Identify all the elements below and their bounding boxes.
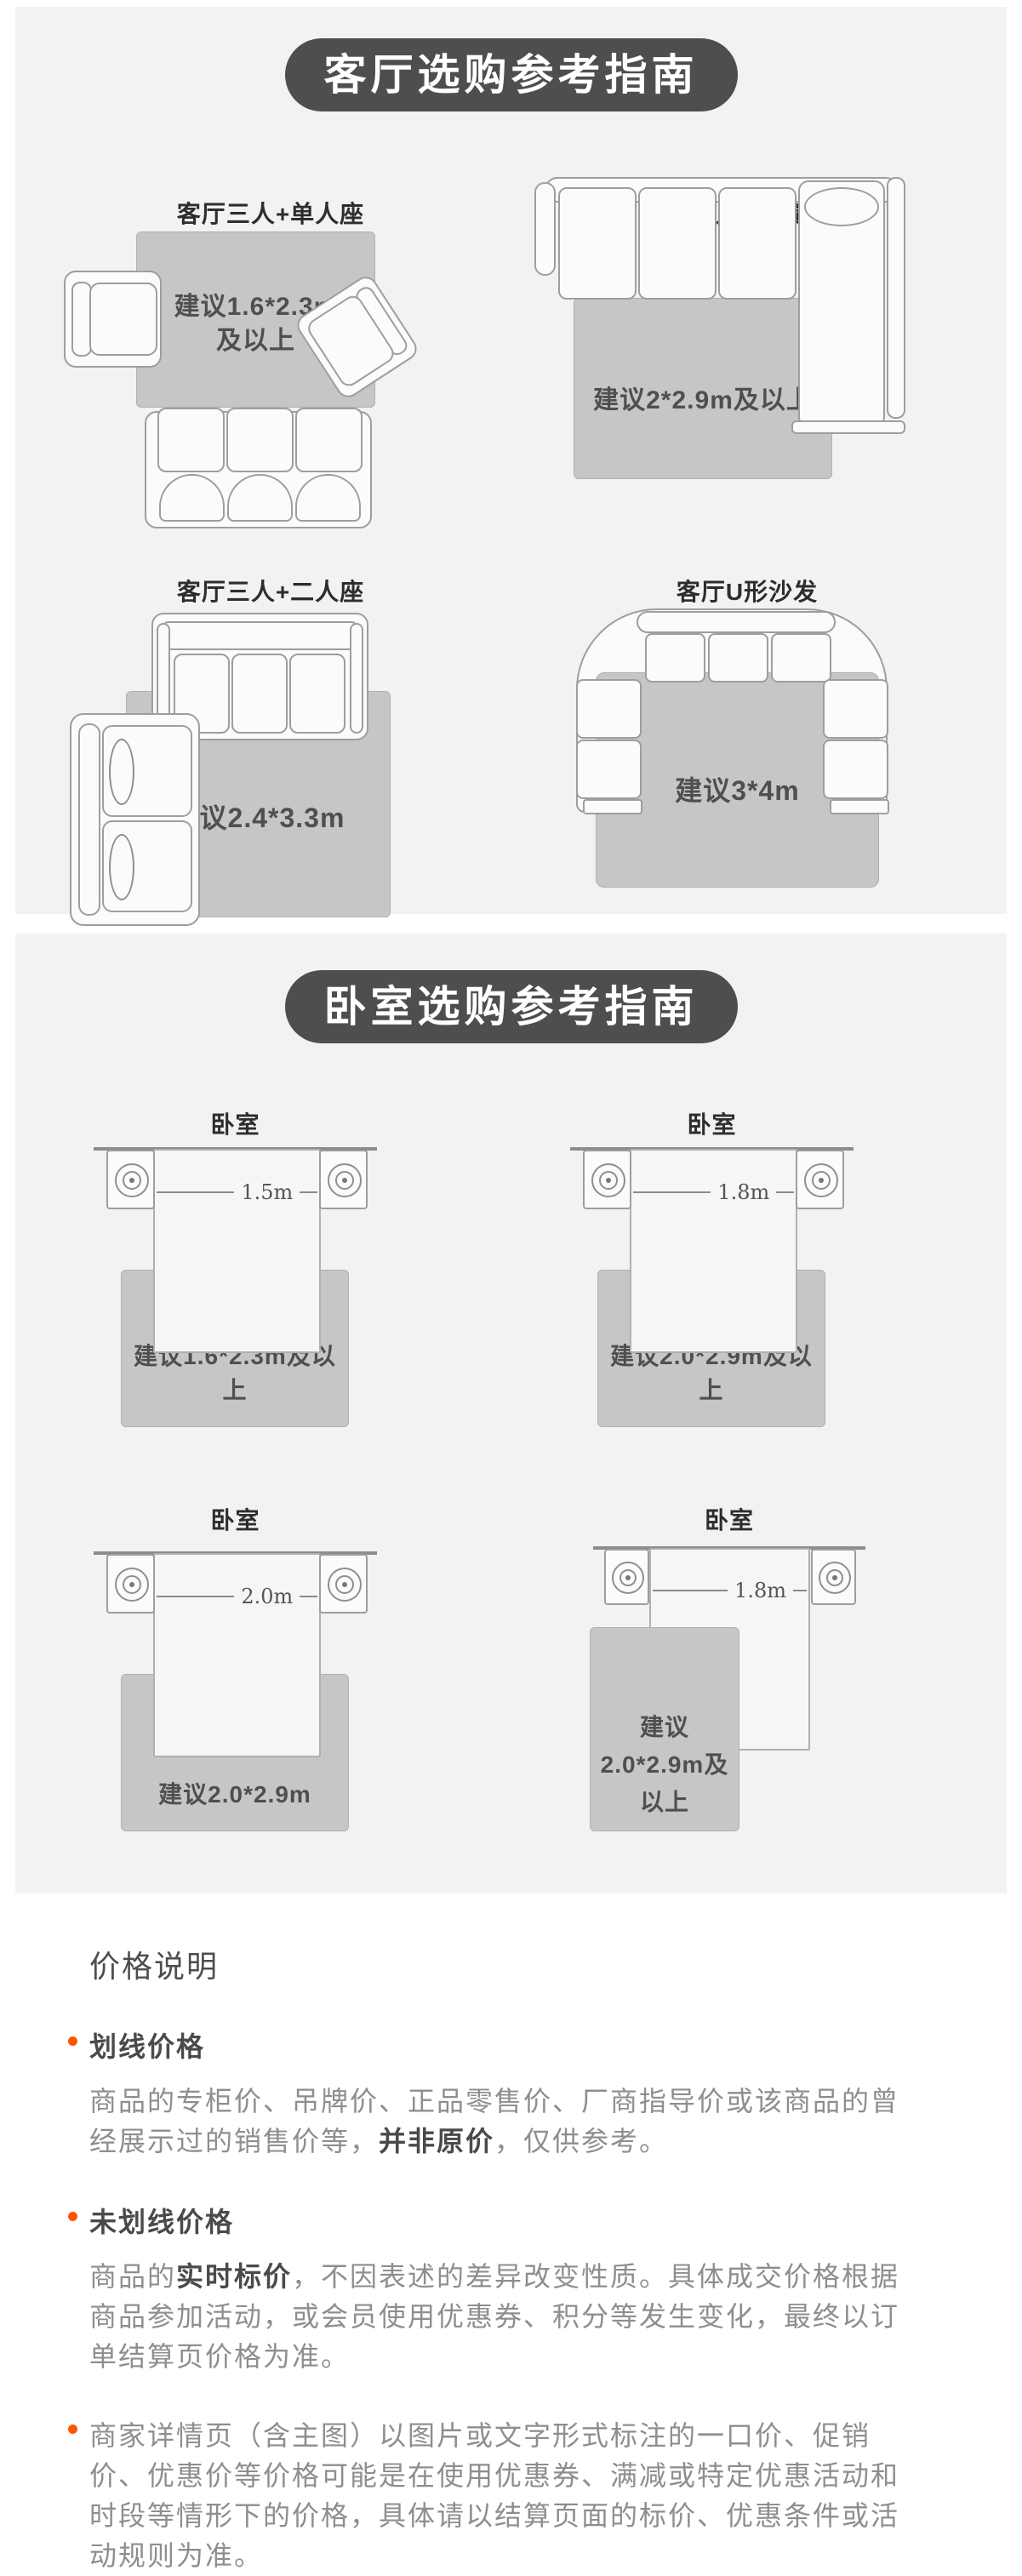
dimension-line [776, 1191, 794, 1193]
bed [153, 1553, 321, 1757]
bed [630, 1149, 797, 1353]
dimension-line [653, 1590, 728, 1591]
bed-width-dimension: 1.5m [157, 1180, 317, 1204]
bullet-dot-icon [68, 2036, 77, 2046]
price-note-body: 商家详情页（含主图）以图片或文字形式标注的一口价、促销价、优惠价等价格可能是在使… [89, 2416, 928, 2576]
seat-cushion [823, 740, 888, 799]
sofa-armrest-right [350, 623, 363, 734]
nightstand-right [811, 1549, 856, 1605]
diagram-bedroom-1: 卧室 建议1.6*2.3m及以上 1.5m [49, 1095, 492, 1444]
seat-cushion [102, 820, 192, 912]
living-room-guide-section: 客厅选购参考指南 客厅三人+单人座 建议1.6*2.3m 及以上 [15, 7, 1007, 914]
chaise-lounge [798, 180, 885, 427]
lamp-icon [606, 1178, 611, 1183]
bed-width-value: 1.8m [717, 1180, 769, 1204]
nightstand-left [106, 1554, 155, 1614]
seat-pillow [109, 739, 134, 805]
seat-cushion [157, 408, 225, 472]
sofa-2seat [70, 713, 200, 926]
sofa-base [583, 799, 642, 814]
bed [153, 1149, 321, 1353]
rug-size-label: 建议 2.0*2.9m及以上 [591, 1628, 739, 1821]
diagram-title: 卧室 [94, 1502, 377, 1536]
bedroom-guide-header: 卧室选购参考指南 [285, 970, 738, 1043]
armchair-cushion [89, 283, 157, 356]
price-note-item: 未划线价格 商品的实时标价，不因表述的差异改变性质。具体成交价格根据商品参加活动… [89, 2201, 971, 2377]
rug-size-label: 建议2*2.9m及以上 [574, 299, 831, 418]
lamp-icon [129, 1582, 134, 1587]
sofa-armrest-left [534, 182, 556, 276]
bed-width-dimension: 1.8m [633, 1180, 794, 1204]
diagram-bedroom-4: 卧室 1.8m 建议 2.0*2.9m及以上 [526, 1495, 968, 1844]
nightstand-left [583, 1150, 631, 1209]
dimension-line [300, 1596, 317, 1597]
dimension-line [793, 1590, 807, 1591]
sofa-base [830, 799, 889, 814]
bed-width-dimension: 1.8m [653, 1579, 807, 1602]
diagram-living-3seat-plus-single: 客厅三人+单人座 建议1.6*2.3m 及以上 [49, 177, 492, 551]
living-room-guide-header: 客厅选购参考指南 [285, 38, 738, 111]
seat-cushion [638, 187, 717, 300]
price-note-subtitle: 未划线价格 [89, 2201, 971, 2240]
seat-cushion [645, 633, 705, 683]
sofa-backrest-bar [78, 723, 100, 916]
nightstand-right [319, 1554, 368, 1614]
price-notes-section: 价格说明 划线价格 商品的专柜价、吊牌价、正品零售价、厂商指导价或该商品的曾经展… [89, 1942, 971, 2576]
diagram-bedroom-2: 卧室 建议2.0*2.9m及以上 1.8m [526, 1095, 968, 1444]
dimension-line [633, 1191, 711, 1193]
bed-width-value: 1.8m [734, 1579, 786, 1602]
diagram-title: 卧室 [94, 1106, 377, 1140]
diagram-living-3seat-plus-chaise: 客厅三人座+贵妃椅 建议2*2.9m及以上 [526, 177, 968, 551]
price-note-body: 商品的专柜价、吊牌价、正品零售价、厂商指导价或该商品的曾经展示过的销售价等，并非… [89, 2082, 928, 2162]
lamp-icon [342, 1582, 347, 1587]
seat-cushion [823, 679, 888, 739]
back-cushion [295, 474, 361, 522]
sofa-backrest-bar [637, 611, 836, 633]
lamp-icon [342, 1178, 347, 1183]
diagram-title: 客厅三人+二人座 [49, 574, 492, 608]
diagram-bedroom-3: 卧室 建议2.0*2.9m 2.0m [49, 1495, 492, 1844]
diagram-living-3seat-plus-2seat: 客厅三人+二人座 建议2.4*3.3m [49, 551, 492, 934]
price-note-item: 划线价格 商品的专柜价、吊牌价、正品零售价、厂商指导价或该商品的曾经展示过的销售… [89, 2025, 971, 2162]
chaise-pillow [804, 187, 879, 226]
seat-cushion [558, 187, 637, 300]
bed-width-value: 2.0m [241, 1585, 293, 1608]
dimension-line [157, 1596, 234, 1597]
nightstand-left [106, 1150, 155, 1209]
bed-width-dimension: 2.0m [157, 1585, 317, 1608]
price-note-subtitle: 划线价格 [89, 2025, 971, 2065]
lamp-icon [625, 1575, 631, 1580]
lamp-icon [832, 1575, 837, 1580]
seat-cushion [718, 187, 796, 300]
price-notes-title: 价格说明 [89, 1942, 971, 1986]
seat-cushion [771, 633, 831, 683]
diagram-title: 卧室 [570, 1106, 854, 1140]
bullet-dot-icon [68, 2212, 77, 2221]
seat-cushion [102, 725, 192, 817]
diagram-title: 客厅三人+单人座 [49, 196, 492, 230]
armchair-left [64, 271, 162, 368]
sofa-armrest-right [887, 177, 905, 419]
rug: 建议2*2.9m及以上 [574, 298, 832, 479]
seat-pillow [109, 834, 134, 900]
seat-cushion [576, 740, 642, 799]
sofa-3seat [145, 411, 372, 528]
lamp-icon [819, 1178, 824, 1183]
bed-width-value: 1.5m [241, 1180, 293, 1204]
nightstand-right [796, 1150, 844, 1209]
diagram-title: 客厅U形沙发 [526, 574, 968, 608]
seat-cushion [289, 654, 345, 734]
dimension-line [300, 1191, 317, 1193]
price-note-body: 商品的实时标价，不因表述的差异改变性质。具体成交价格根据商品参加活动，或会员使用… [89, 2257, 928, 2377]
seat-cushion [295, 408, 363, 472]
lamp-icon [129, 1178, 134, 1183]
diagram-title: 卧室 [593, 1502, 865, 1536]
seat-cushion [226, 408, 294, 472]
sofa-backrest-bar [162, 621, 358, 650]
rug-size-label: 建议2.0*2.9m [122, 1778, 348, 1812]
seat-cushion [708, 633, 768, 683]
chaise-base [791, 420, 905, 434]
nightstand-right [319, 1150, 368, 1209]
price-note-item: 商家详情页（含主图）以图片或文字形式标注的一口价、促销价、优惠价等价格可能是在使… [89, 2416, 971, 2576]
bedroom-guide-section: 卧室选购参考指南 卧室 建议1.6*2.3m及以上 1.5m 卧室 建议2.0*… [15, 934, 1007, 1893]
dimension-line [157, 1191, 234, 1193]
bullet-dot-icon [68, 2425, 77, 2434]
diagram-living-u-sofa: 客厅U形沙发 建议3*4m [526, 551, 968, 934]
rug: 建议 2.0*2.9m及以上 [590, 1627, 739, 1831]
back-cushion [227, 474, 293, 522]
back-cushion [159, 474, 225, 522]
seat-cushion [231, 654, 288, 734]
nightstand-left [604, 1549, 649, 1605]
seat-cushion [576, 679, 642, 739]
